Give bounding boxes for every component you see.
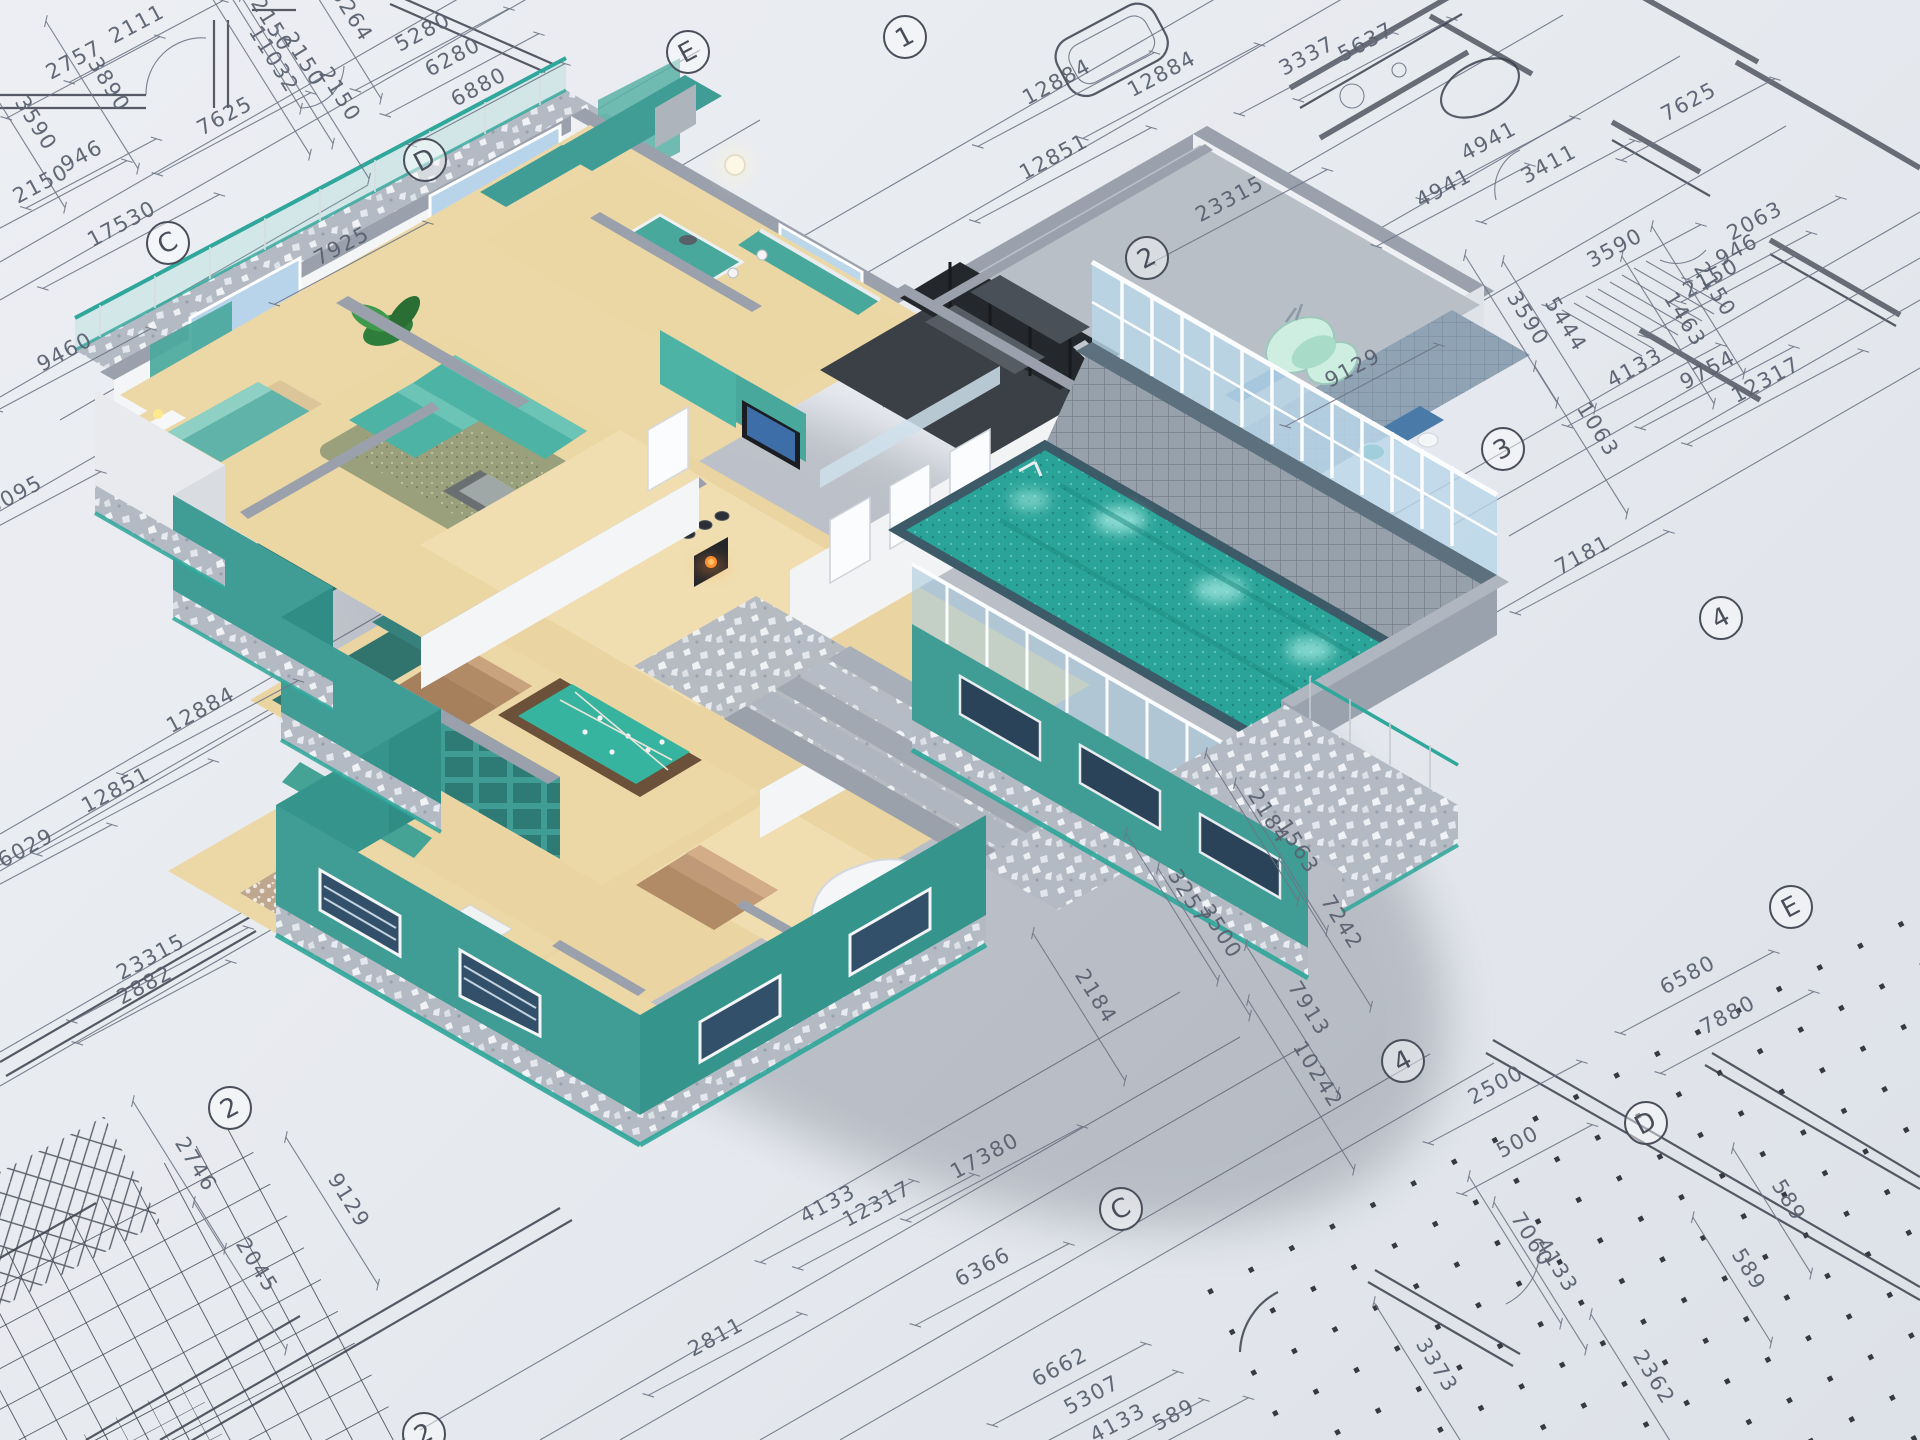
dimension-tick xyxy=(1663,530,1674,534)
dimension-tick xyxy=(377,1279,380,1291)
dimension-label: 3590 xyxy=(10,92,62,155)
dimension-tick xyxy=(106,823,117,827)
dimension-tick xyxy=(1146,126,1157,130)
dimension-tick xyxy=(217,0,228,2)
dimension-label: 4133 xyxy=(1603,343,1667,392)
blueprint-render-image: 2111275738903590946215017530762582641103… xyxy=(0,0,1920,1440)
dimension-label: 589 xyxy=(1148,1394,1199,1436)
dimension-tick xyxy=(1293,99,1304,103)
dimension-label: 12851 xyxy=(77,762,154,818)
dimension-tick xyxy=(1234,113,1245,117)
dimension-tick xyxy=(243,926,254,930)
dimension-tick xyxy=(1626,508,1629,520)
dimension-label: 4941 xyxy=(1457,116,1521,165)
dimension-tick xyxy=(1510,612,1521,616)
dimension-label: 6662 xyxy=(1028,1342,1092,1391)
dimension-label: 2111 xyxy=(105,0,169,48)
dimension-tick xyxy=(1322,168,1333,172)
dimension-label: 12851 xyxy=(1015,129,1092,185)
dimension-tick xyxy=(792,1267,803,1271)
dimension-tick xyxy=(380,114,391,118)
dimension-tick xyxy=(132,1095,135,1107)
dimension-label: 9129 xyxy=(323,1169,375,1232)
dimension-tick xyxy=(300,103,303,115)
dimension-tick xyxy=(151,137,162,141)
dimension-tick xyxy=(1835,196,1846,200)
dimension-tick xyxy=(1243,1396,1254,1400)
dimension-tick xyxy=(240,0,243,2)
dimension-tick xyxy=(1198,1398,1209,1402)
dimension-tick xyxy=(1635,427,1646,431)
dimension-label: 3590 xyxy=(1502,287,1554,350)
dimension-tick xyxy=(972,145,983,149)
dimension-tick xyxy=(1464,249,1467,261)
dimension-tick xyxy=(1695,223,1706,227)
scene-svg: 2111275738903590946215017530762582641103… xyxy=(0,0,1920,1440)
dimension-tick xyxy=(1140,1342,1151,1346)
dimension-label: 7625 xyxy=(1657,77,1721,126)
dimension-tick xyxy=(121,159,132,163)
dimension-label: 3890 xyxy=(83,53,135,116)
dimension-label: 2150 xyxy=(9,159,73,208)
dimension-label: 1063 xyxy=(1572,398,1624,461)
dimension-label: 12884 xyxy=(1123,46,1200,102)
dimension-tick xyxy=(910,1324,921,1328)
dimension-tick xyxy=(1806,231,1817,235)
dimension-tick xyxy=(208,759,219,763)
dimension-tick xyxy=(987,1424,998,1428)
dimension-tick xyxy=(643,1394,654,1398)
dimension-label: 3095 xyxy=(0,470,47,519)
dimension-tick xyxy=(1651,220,1654,232)
dimension-label: 9460 xyxy=(33,327,97,376)
dimension-tick xyxy=(900,1219,911,1223)
dimension-tick xyxy=(796,1312,807,1316)
dimension-label: 3590 xyxy=(1583,223,1647,272)
dimension-label: 5444 xyxy=(1540,293,1592,356)
dimension-tick xyxy=(45,15,48,27)
dimension-label: 1463 xyxy=(1659,288,1711,351)
dimension-tick xyxy=(1063,1242,1074,1246)
dimension-label: 12317 xyxy=(1727,352,1804,408)
dimension-tick xyxy=(533,32,544,36)
dimension-tick xyxy=(1172,1370,1183,1374)
dimension-tick xyxy=(214,193,225,197)
dimension-tick xyxy=(1502,255,1505,267)
dimension-tick xyxy=(755,1261,766,1265)
dimension-label: 2811 xyxy=(684,1312,748,1361)
dimension-label: 4941 xyxy=(1412,163,1476,212)
dimension-tick xyxy=(1788,345,1799,349)
dimension-tick xyxy=(285,1131,288,1143)
dimension-tick xyxy=(225,960,236,964)
dimension-label: 6029 xyxy=(0,823,58,872)
dimension-tick xyxy=(309,149,312,161)
dimension-tick xyxy=(1681,443,1692,447)
dimension-label: 3337 xyxy=(1275,31,1339,80)
dimension-label: 6366 xyxy=(951,1242,1015,1291)
dimension-tick xyxy=(1858,349,1869,353)
dimension-label: 12884 xyxy=(162,682,239,738)
dimension-tick xyxy=(1713,398,1716,410)
dimension-tick xyxy=(37,287,48,291)
dimension-tick xyxy=(1476,221,1487,225)
dimension-tick xyxy=(64,202,67,214)
dimension-tick xyxy=(1616,159,1627,163)
dimension-tick xyxy=(969,220,980,224)
dimension-tick xyxy=(332,138,335,150)
dimension-tick xyxy=(137,163,140,175)
dimension-label: 7181 xyxy=(1551,530,1615,579)
dimension-tick xyxy=(380,93,383,105)
